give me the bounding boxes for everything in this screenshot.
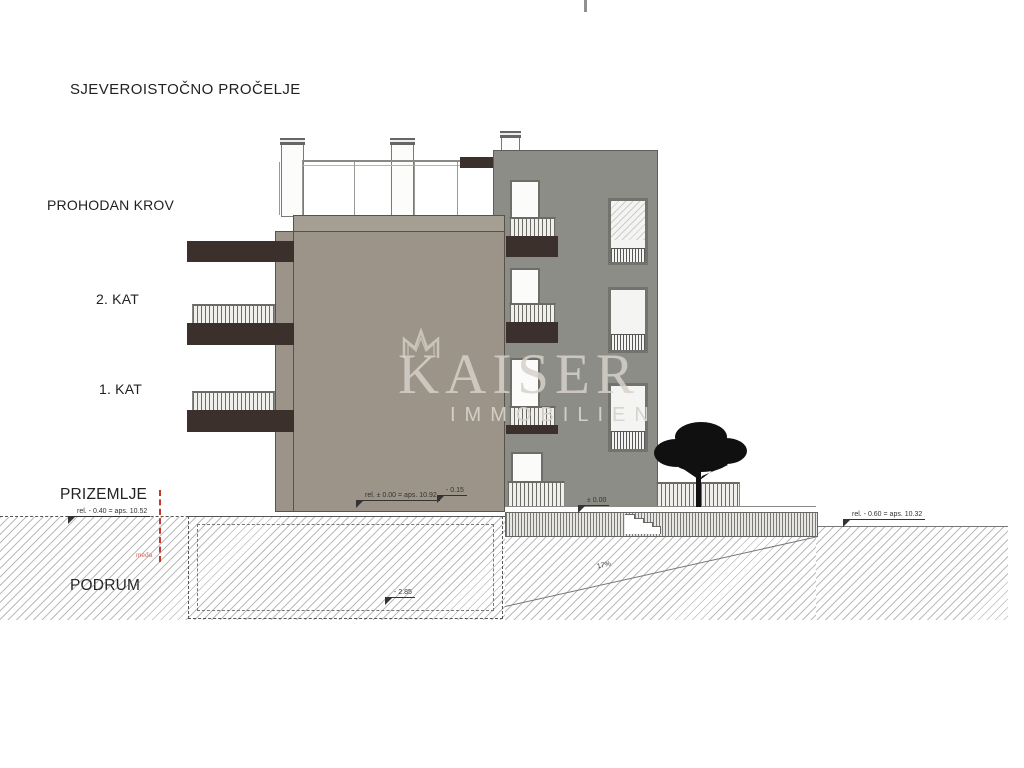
chimney-cap bbox=[500, 131, 521, 138]
level-marker-arrow-icon bbox=[843, 520, 850, 527]
french-balcony-railing bbox=[507, 481, 565, 506]
tree-silhouette bbox=[646, 417, 752, 513]
level-marker-ground-left: rel. - 0.40 = aps. 10.52 bbox=[68, 508, 150, 518]
level-marker-arrow-icon bbox=[578, 506, 585, 513]
level-marker-ground-right: rel. - 0.60 = aps. 10.32 bbox=[843, 511, 925, 521]
level-marker-text: rel. - 0.40 = aps. 10.52 bbox=[68, 508, 150, 517]
ground-hatch-right bbox=[816, 527, 1008, 620]
level-marker-arrow-icon bbox=[385, 598, 392, 605]
level-marker-arrow-icon bbox=[68, 517, 75, 524]
retaining-wall bbox=[505, 512, 818, 537]
chimney bbox=[391, 138, 414, 217]
roof-slab-band bbox=[293, 215, 505, 232]
boundary-line bbox=[159, 490, 161, 562]
stairs-step bbox=[652, 526, 661, 534]
roof-railing-post bbox=[302, 162, 303, 215]
balcony-slab bbox=[187, 410, 294, 432]
roof-railing-post bbox=[354, 162, 355, 215]
balcony-railing bbox=[192, 304, 275, 325]
chimney-cap bbox=[390, 138, 415, 145]
level-marker-basement: - 2.85 bbox=[385, 589, 415, 599]
level-marker-entry: - 0.15 bbox=[437, 487, 467, 497]
roof-railing-post bbox=[414, 162, 415, 215]
balcony-railing bbox=[192, 391, 275, 412]
balcony-slab bbox=[506, 322, 558, 343]
window-railing bbox=[611, 431, 645, 449]
side-wall bbox=[275, 231, 294, 512]
balcony-slab bbox=[187, 323, 294, 345]
level-marker-terrace: ± 0.00 bbox=[578, 497, 609, 507]
basement-outline-inner bbox=[197, 524, 494, 611]
roof-railing-post bbox=[457, 162, 458, 215]
window-glass bbox=[611, 201, 645, 240]
watermark-subtitle: IMMOBILIEN bbox=[450, 404, 658, 427]
level-marker-text: rel. - 0.60 = aps. 10.32 bbox=[843, 511, 925, 520]
chimney-cap bbox=[280, 138, 305, 145]
level-marker-arrow-icon bbox=[356, 501, 363, 508]
boundary-label: međa bbox=[136, 552, 152, 559]
elevation-drawing: SJEVEROISTOČNO PROČELJE PROHODAN KROV 2.… bbox=[0, 0, 1024, 768]
drawing-title: SJEVEROISTOČNO PROČELJE bbox=[70, 81, 301, 98]
window bbox=[608, 198, 648, 265]
level-marker-text: - 2.85 bbox=[385, 589, 415, 598]
roof-parapet bbox=[460, 157, 493, 168]
floor-label-first: 1. KAT bbox=[99, 381, 142, 397]
page-top-tick bbox=[584, 0, 587, 12]
floor-label-roof: PROHODAN KROV bbox=[47, 197, 174, 213]
floor-label-ground: PRIZEMLJE bbox=[60, 486, 147, 504]
level-marker-text: rel. ± 0.00 = aps. 10.92 bbox=[356, 492, 440, 501]
level-marker-text: ± 0.00 bbox=[578, 497, 609, 506]
watermark-brand: KAISER bbox=[398, 342, 640, 407]
balcony-slab bbox=[506, 236, 558, 257]
balcony-slab bbox=[187, 241, 294, 262]
level-marker-text: - 0.15 bbox=[437, 487, 467, 496]
roof-railing-top bbox=[302, 160, 460, 162]
level-marker-zero-main: rel. ± 0.00 = aps. 10.92 bbox=[356, 492, 440, 502]
roof-railing-bottom bbox=[302, 165, 460, 166]
level-marker-arrow-icon bbox=[437, 496, 444, 503]
roof-railing-post bbox=[279, 162, 280, 215]
window-railing bbox=[611, 248, 645, 262]
chimney bbox=[281, 138, 304, 217]
floor-label-second: 2. KAT bbox=[96, 291, 139, 307]
